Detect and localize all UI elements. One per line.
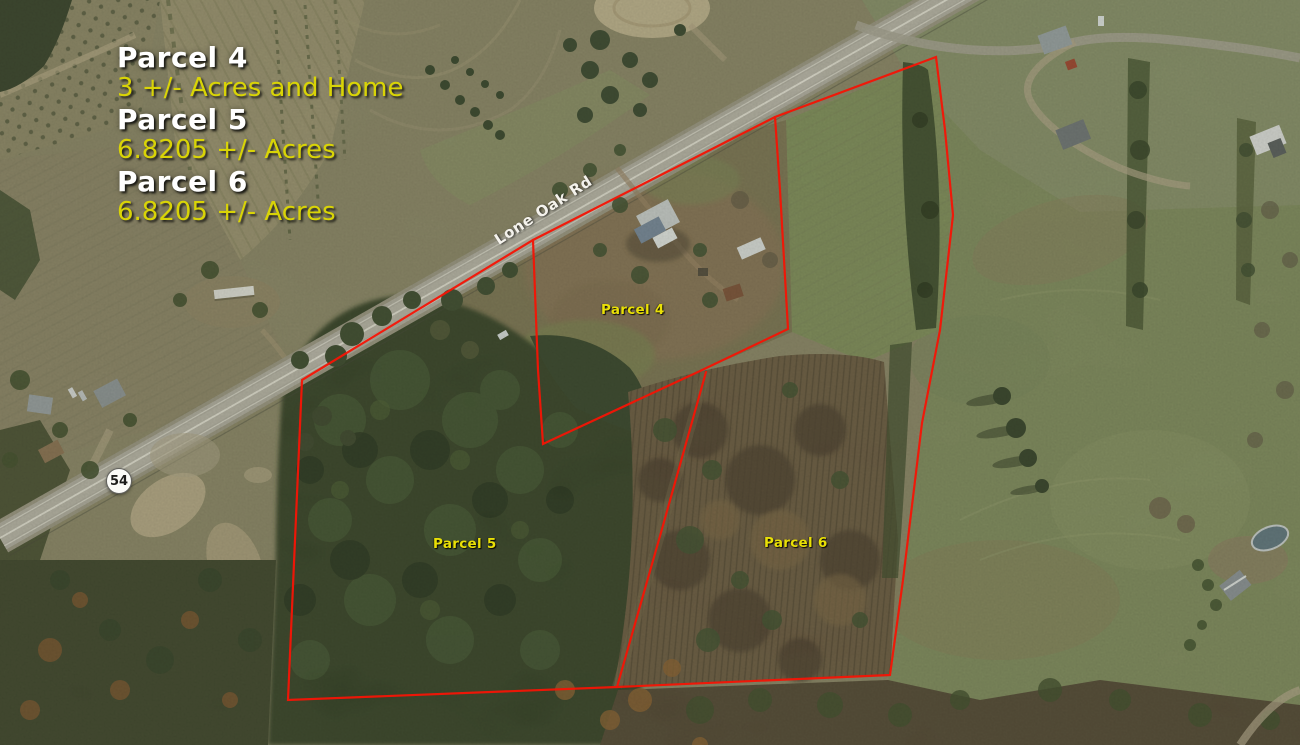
legend-parcel5-title: Parcel 5 [117, 104, 404, 135]
route-54-number: 54 [110, 474, 128, 489]
legend-parcel6-subtitle: 6.8205 +/- Acres [117, 197, 404, 228]
legend-parcel6-title: Parcel 6 [117, 166, 404, 197]
aerial-parcel-map: Parcel 4 3 +/- Acres and Home Parcel 5 6… [0, 0, 1300, 745]
route-54-shield: 54 [106, 468, 132, 494]
legend-parcel5-subtitle: 6.8205 +/- Acres [117, 135, 404, 166]
legend: Parcel 4 3 +/- Acres and Home Parcel 5 6… [117, 42, 404, 228]
legend-parcel4-subtitle: 3 +/- Acres and Home [117, 73, 404, 104]
legend-parcel4-title: Parcel 4 [117, 42, 404, 73]
parcel5-map-label: Parcel 5 [433, 536, 497, 552]
parcel4-map-label: Parcel 4 [601, 302, 665, 318]
parcel6-map-label: Parcel 6 [764, 535, 828, 551]
